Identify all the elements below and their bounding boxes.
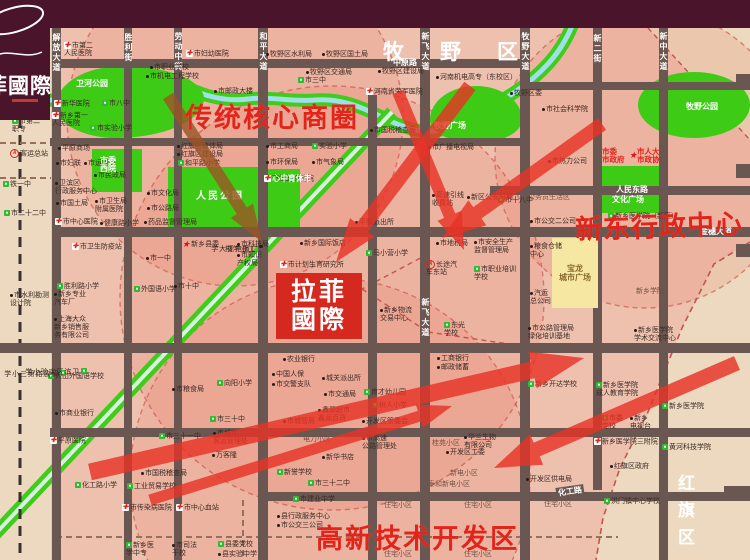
district-label-hongqi: 红旗区 xyxy=(672,474,697,555)
brand-logo-text: 拉菲國際 xyxy=(0,70,50,100)
zone-title-traditional-core: 传统核心商圈 xyxy=(185,96,359,135)
brochure-map: 拉菲國際 宝龙 城市广场 解放大道胜利街劳动中街和平大道新飞大道新飞大道牧野大道… xyxy=(0,0,750,560)
top-banner xyxy=(0,0,750,28)
brand-swoosh-icon xyxy=(0,0,50,70)
district-label-muye: 牧野区 xyxy=(383,36,554,66)
brand-sidebar: 拉菲國際 xyxy=(0,0,50,120)
brand-logo-accent xyxy=(12,99,38,102)
zone-title-hitech-zone: 高新技术开发区 xyxy=(316,517,519,556)
arrows-layer xyxy=(0,0,750,560)
zone-title-new-east-admin: 新东行政中心 xyxy=(574,202,743,247)
